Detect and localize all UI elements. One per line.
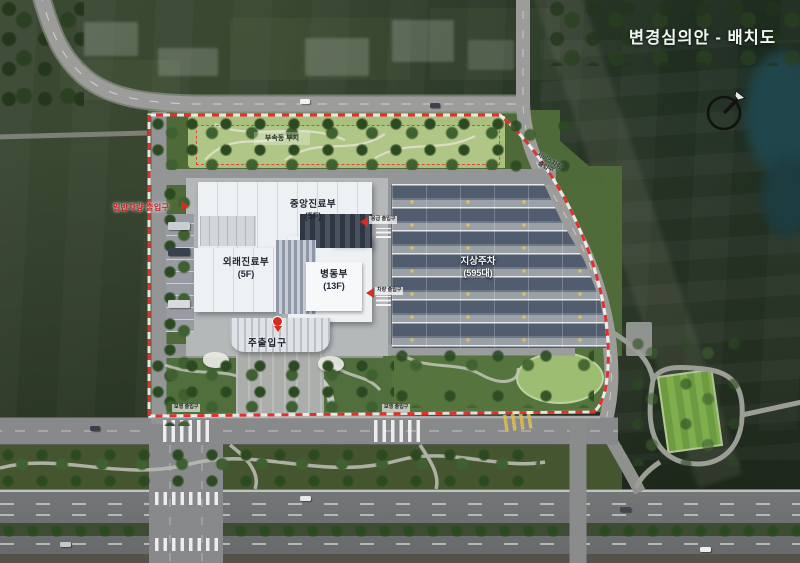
label-central-building: 중앙진료부 (5F) [270, 199, 356, 222]
tree-cluster [394, 348, 594, 408]
label-pedestrian-entrance-west: 보행 출입구 [172, 404, 200, 412]
label-annex-site: 부속동 부지 [254, 132, 310, 145]
label-parking: 지상주차 (595대) [440, 256, 516, 280]
car [620, 507, 631, 512]
main-entrance-pin-icon [272, 316, 283, 332]
compass-needle [724, 99, 738, 113]
median-trees [0, 524, 142, 537]
ward-name: 병동부 [306, 269, 362, 281]
car [60, 542, 71, 547]
parking-capacity: (595대) [440, 268, 516, 280]
outpatient-name: 외래진료부 [209, 257, 283, 269]
label-general-vehicle-entrance: 일반차량 출입구 [113, 202, 169, 213]
central-name: 중앙진료부 [270, 199, 356, 211]
car [90, 426, 100, 431]
car [430, 103, 440, 108]
car [168, 300, 190, 308]
car [168, 222, 190, 230]
car [300, 496, 311, 501]
outpatient-floors: (5F) [209, 269, 283, 280]
median-trees [232, 524, 568, 537]
compass-svg [700, 84, 752, 136]
label-main-entrance: 주출입구 [248, 335, 287, 349]
ward-floors: (13F) [306, 281, 362, 292]
parking-name: 지상주차 [440, 256, 516, 268]
pin-tail [274, 326, 282, 332]
median-trees [596, 524, 800, 537]
car [300, 99, 310, 104]
label-vehicle-entrance: 차량 출입구 [375, 287, 403, 295]
label-ward-building: 병동부 (13F) [306, 262, 362, 311]
tree-cluster [0, 447, 540, 489]
tree-cluster [150, 116, 506, 170]
car [700, 547, 711, 552]
page-title: 변경심의안 - 배치도 [629, 24, 776, 48]
arrow-left-icon [360, 217, 368, 227]
arrow-left-icon [366, 288, 374, 298]
label-emergency-entrance: 응급 출입구 [369, 216, 397, 224]
label-outpatient-building: 외래진료부 (5F) [209, 257, 283, 280]
compass-needle-tip [735, 91, 745, 100]
arrow-right-icon [181, 201, 189, 211]
site-plan-rendering: 중앙진료부 (5F) 외래진료부 (5F) 병동부 (13F) 지상주차 (59… [0, 0, 800, 563]
car [168, 248, 190, 256]
tree-cluster [630, 336, 750, 466]
label-pedestrian-entrance-east: 보행 출입구 [382, 404, 410, 412]
north-compass-icon [700, 84, 752, 141]
central-floors: (5F) [270, 211, 356, 222]
